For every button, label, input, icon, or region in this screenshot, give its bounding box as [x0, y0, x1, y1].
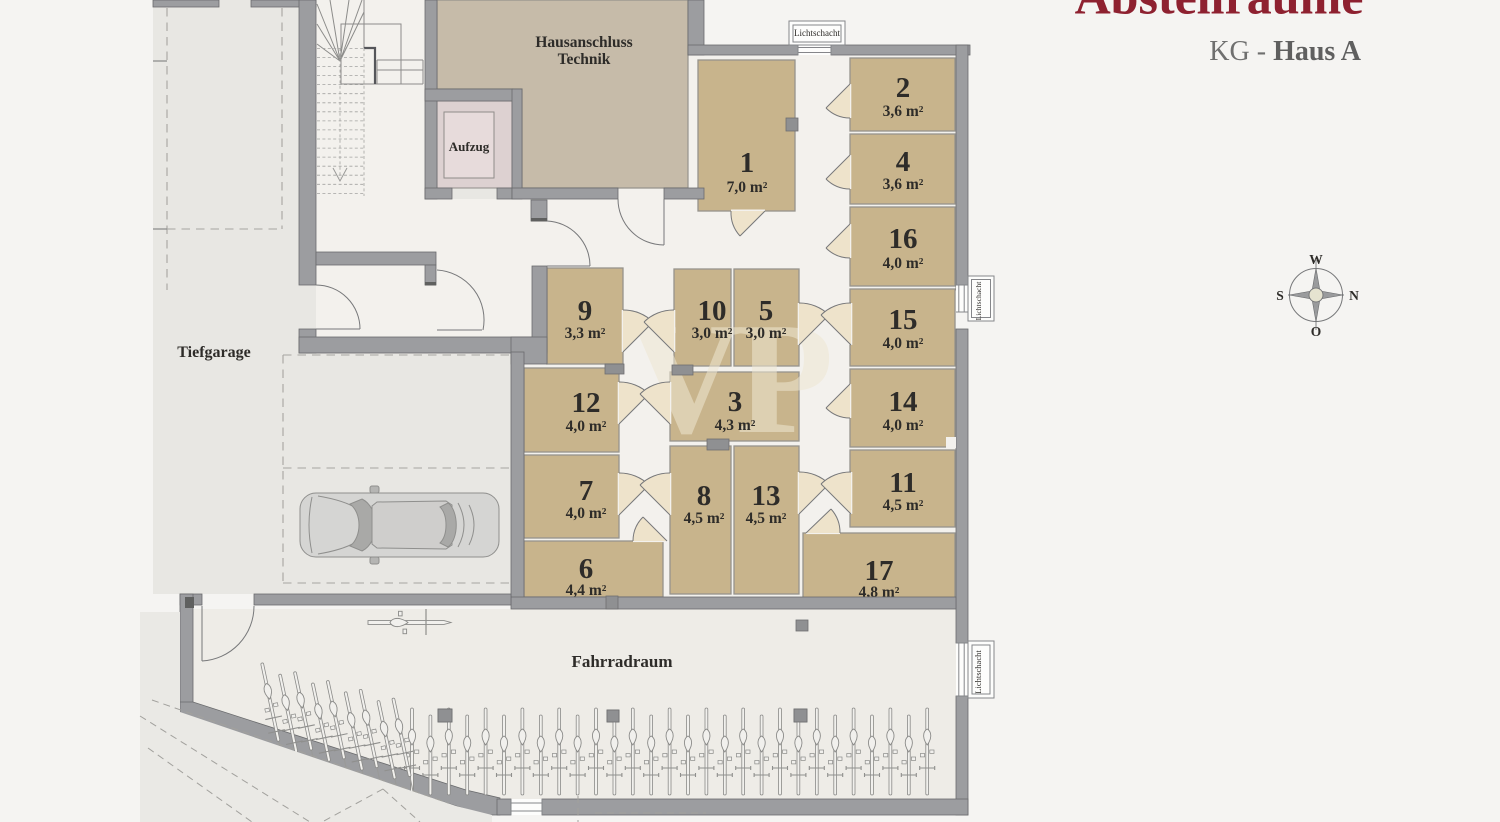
svg-text:12: 12: [572, 387, 601, 419]
svg-text:4,3 m²: 4,3 m²: [715, 417, 756, 434]
svg-text:1: 1: [740, 147, 755, 179]
svg-text:4,0 m²: 4,0 m²: [883, 417, 924, 434]
svg-text:4: 4: [896, 146, 911, 178]
svg-text:16: 16: [889, 223, 918, 255]
svg-text:3,3 m²: 3,3 m²: [565, 325, 606, 342]
svg-text:Lichtschacht: Lichtschacht: [973, 650, 983, 694]
svg-text:7,0 m²: 7,0 m²: [727, 179, 768, 196]
svg-text:4,4 m²: 4,4 m²: [566, 582, 607, 599]
svg-text:O: O: [1311, 324, 1322, 339]
svg-text:14: 14: [889, 386, 918, 418]
svg-text:3: 3: [728, 386, 743, 418]
svg-text:Lichtschacht: Lichtschacht: [974, 281, 983, 321]
svg-text:4,5 m²: 4,5 m²: [746, 510, 787, 527]
svg-text:Abstellräume: Abstellräume: [1075, 0, 1364, 25]
svg-text:10: 10: [698, 295, 727, 327]
svg-text:3,0 m²: 3,0 m²: [746, 325, 787, 342]
svg-text:N: N: [1349, 288, 1359, 303]
svg-text:KG - Haus A: KG - Haus A: [1209, 36, 1361, 67]
svg-text:Hausanschluss: Hausanschluss: [535, 34, 632, 51]
svg-text:Tiefgarage: Tiefgarage: [177, 344, 250, 361]
svg-text:6: 6: [579, 553, 594, 585]
svg-text:2: 2: [896, 72, 911, 104]
svg-text:3,6 m²: 3,6 m²: [883, 176, 924, 193]
svg-text:Technik: Technik: [558, 51, 611, 68]
svg-text:3,0 m²: 3,0 m²: [692, 325, 733, 342]
svg-text:11: 11: [889, 467, 916, 499]
svg-text:S: S: [1276, 288, 1284, 303]
svg-text:Aufzug: Aufzug: [449, 139, 490, 154]
svg-text:W: W: [1309, 252, 1323, 267]
svg-text:8: 8: [697, 480, 712, 512]
svg-text:13: 13: [752, 480, 781, 512]
svg-text:Lichtschacht: Lichtschacht: [794, 28, 840, 38]
svg-text:4,5 m²: 4,5 m²: [684, 510, 725, 527]
svg-text:7: 7: [579, 475, 594, 507]
svg-text:3,6 m²: 3,6 m²: [883, 103, 924, 120]
svg-text:4,0 m²: 4,0 m²: [883, 255, 924, 272]
svg-text:Fahrradraum: Fahrradraum: [571, 652, 672, 671]
svg-text:5: 5: [759, 295, 774, 327]
svg-text:17: 17: [865, 555, 894, 587]
svg-text:4,0 m²: 4,0 m²: [883, 335, 924, 352]
svg-text:4,0 m²: 4,0 m²: [566, 505, 607, 522]
svg-text:15: 15: [889, 304, 918, 336]
svg-text:9: 9: [578, 295, 593, 327]
svg-text:4,5 m²: 4,5 m²: [883, 497, 924, 514]
svg-text:4,0 m²: 4,0 m²: [566, 418, 607, 435]
